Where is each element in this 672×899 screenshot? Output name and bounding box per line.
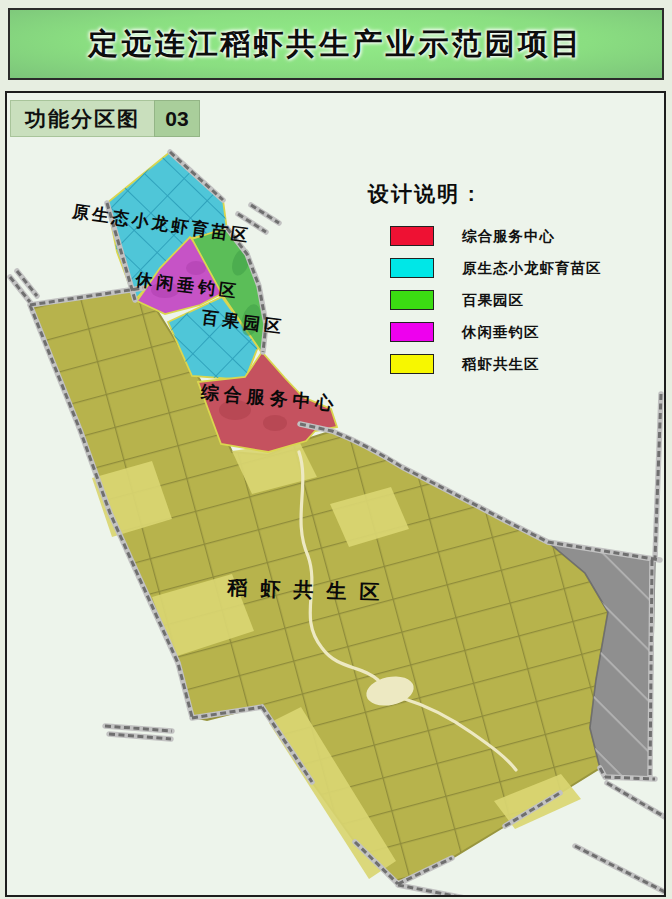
legend-title: 设计说明 : <box>368 180 648 208</box>
legend-row-service-center: 综合服务中心 <box>390 226 648 246</box>
legend-swatch-crayfish-nursery <box>390 258 434 278</box>
legend-label-service-center: 综合服务中心 <box>462 227 555 246</box>
legend-row-crayfish-nursery: 原生态小龙虾育苗区 <box>390 258 648 278</box>
zoning-map-page: 定远连江稻虾共生产业示范园项目 功能分区图 03 <box>0 0 672 899</box>
legend-swatch-service-center <box>390 226 434 246</box>
legend-swatch-orchard <box>390 290 434 310</box>
legend-label-crayfish-nursery: 原生态小龙虾育苗区 <box>462 259 602 278</box>
legend-label-rice-shrimp: 稻虾共生区 <box>462 355 540 374</box>
legend-rows: 综合服务中心 原生态小龙虾育苗区 百果园区 休闲垂钓区 稻虾共生区 <box>368 226 648 374</box>
legend-label-fishing: 休闲垂钓区 <box>462 323 540 342</box>
legend-row-rice-shrimp: 稻虾共生区 <box>390 354 648 374</box>
map-tab-number: 03 <box>154 100 200 137</box>
legend-label-orchard: 百果园区 <box>462 291 524 310</box>
title-banner: 定远连江稻虾共生产业示范园项目 <box>8 8 664 80</box>
page-title: 定远连江稻虾共生产业示范园项目 <box>89 24 584 65</box>
legend-row-orchard: 百果园区 <box>390 290 648 310</box>
legend-swatch-fishing <box>390 322 434 342</box>
map-label-rice-shrimp: 稻虾共生区 <box>227 574 393 607</box>
legend: 设计说明 : 综合服务中心 原生态小龙虾育苗区 百果园区 休闲垂钓区 稻虾共生区 <box>368 180 648 386</box>
map-tab-title: 功能分区图 <box>10 100 154 137</box>
map-tab: 功能分区图 03 <box>10 100 200 137</box>
legend-row-fishing: 休闲垂钓区 <box>390 322 648 342</box>
legend-swatch-rice-shrimp <box>390 354 434 374</box>
